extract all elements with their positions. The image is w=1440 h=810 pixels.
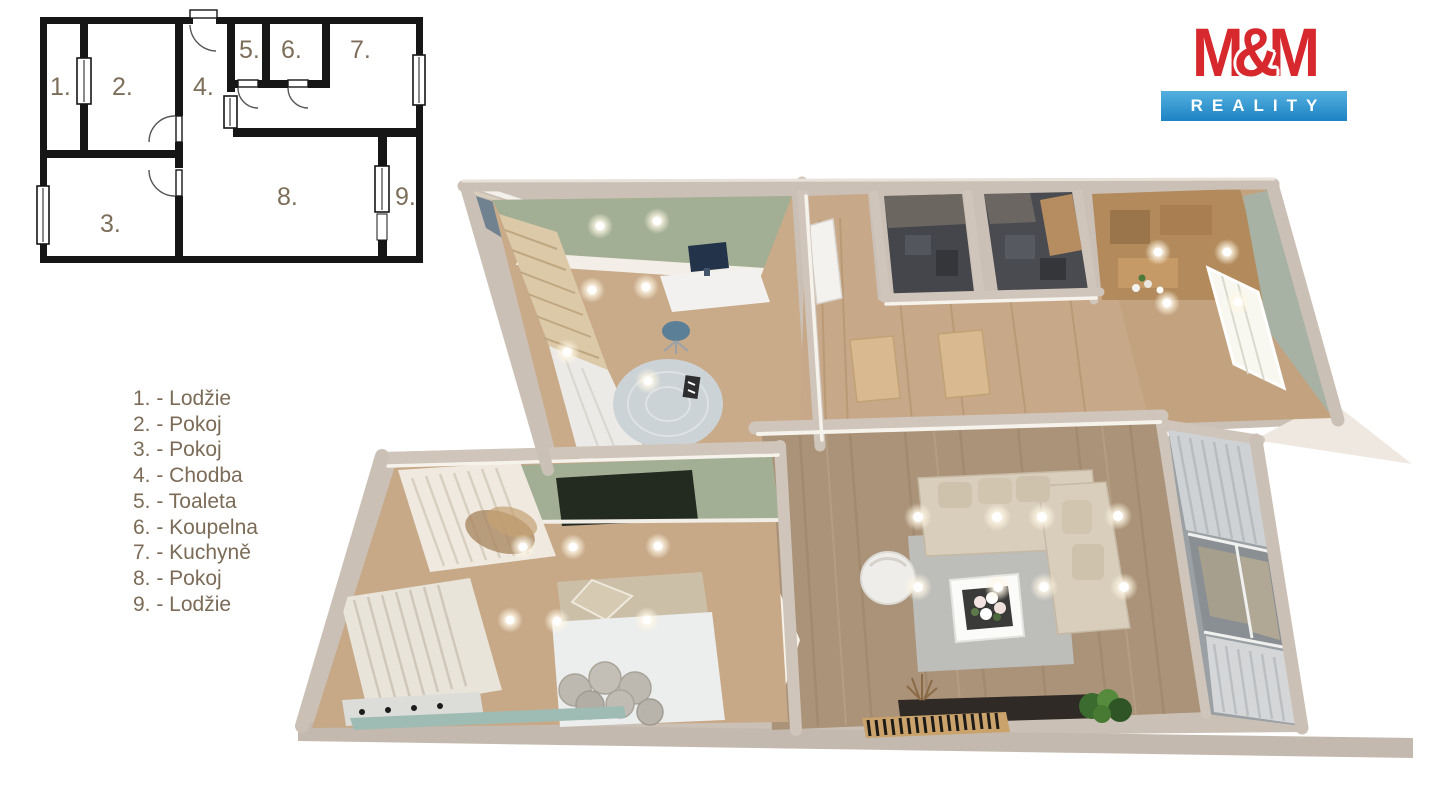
plan-room-number-2: 2. (112, 73, 133, 101)
legend-item-8: 8. - Pokoj (133, 566, 258, 592)
plan-room-number-5: 5. (239, 36, 260, 64)
page: 1. 2. 3. 4. 5. 6. 7. 8. 9. 1. - Lodžie 2… (0, 0, 1440, 810)
legend-item-2: 2. - Pokoj (133, 412, 258, 438)
plan-room-number-1: 1. (50, 73, 71, 101)
legend-item-4: 4. - Chodba (133, 463, 258, 489)
legend-item-9: 9. - Lodžie (133, 592, 258, 618)
logo-mm-text: M&M (1161, 20, 1347, 88)
render-room-8-living (762, 420, 1208, 738)
render-room-6-bathroom (984, 192, 1088, 292)
plan-room-number-4: 4. (193, 73, 214, 101)
plan-room-number-7: 7. (350, 36, 371, 64)
mm-reality-logo: M&M REALITY (1161, 26, 1347, 121)
room-legend: 1. - Lodžie 2. - Pokoj 3. - Pokoj 4. - C… (133, 386, 258, 617)
legend-item-3: 3. - Pokoj (133, 437, 258, 463)
legend-item-5: 5. - Toaleta (133, 489, 258, 515)
legend-item-1: 1. - Lodžie (133, 386, 258, 412)
logo-reality-banner: REALITY (1161, 91, 1347, 121)
render-room-5-toilet (884, 194, 974, 296)
legend-item-7: 7. - Kuchyně (133, 540, 258, 566)
floor-plan-3d-render (280, 160, 1425, 772)
plan-room-number-3: 3. (100, 210, 121, 238)
legend-item-6: 6. - Koupelna (133, 515, 258, 541)
plan-room-number-6: 6. (281, 36, 302, 64)
logo-ampersand: & (1234, 15, 1275, 91)
